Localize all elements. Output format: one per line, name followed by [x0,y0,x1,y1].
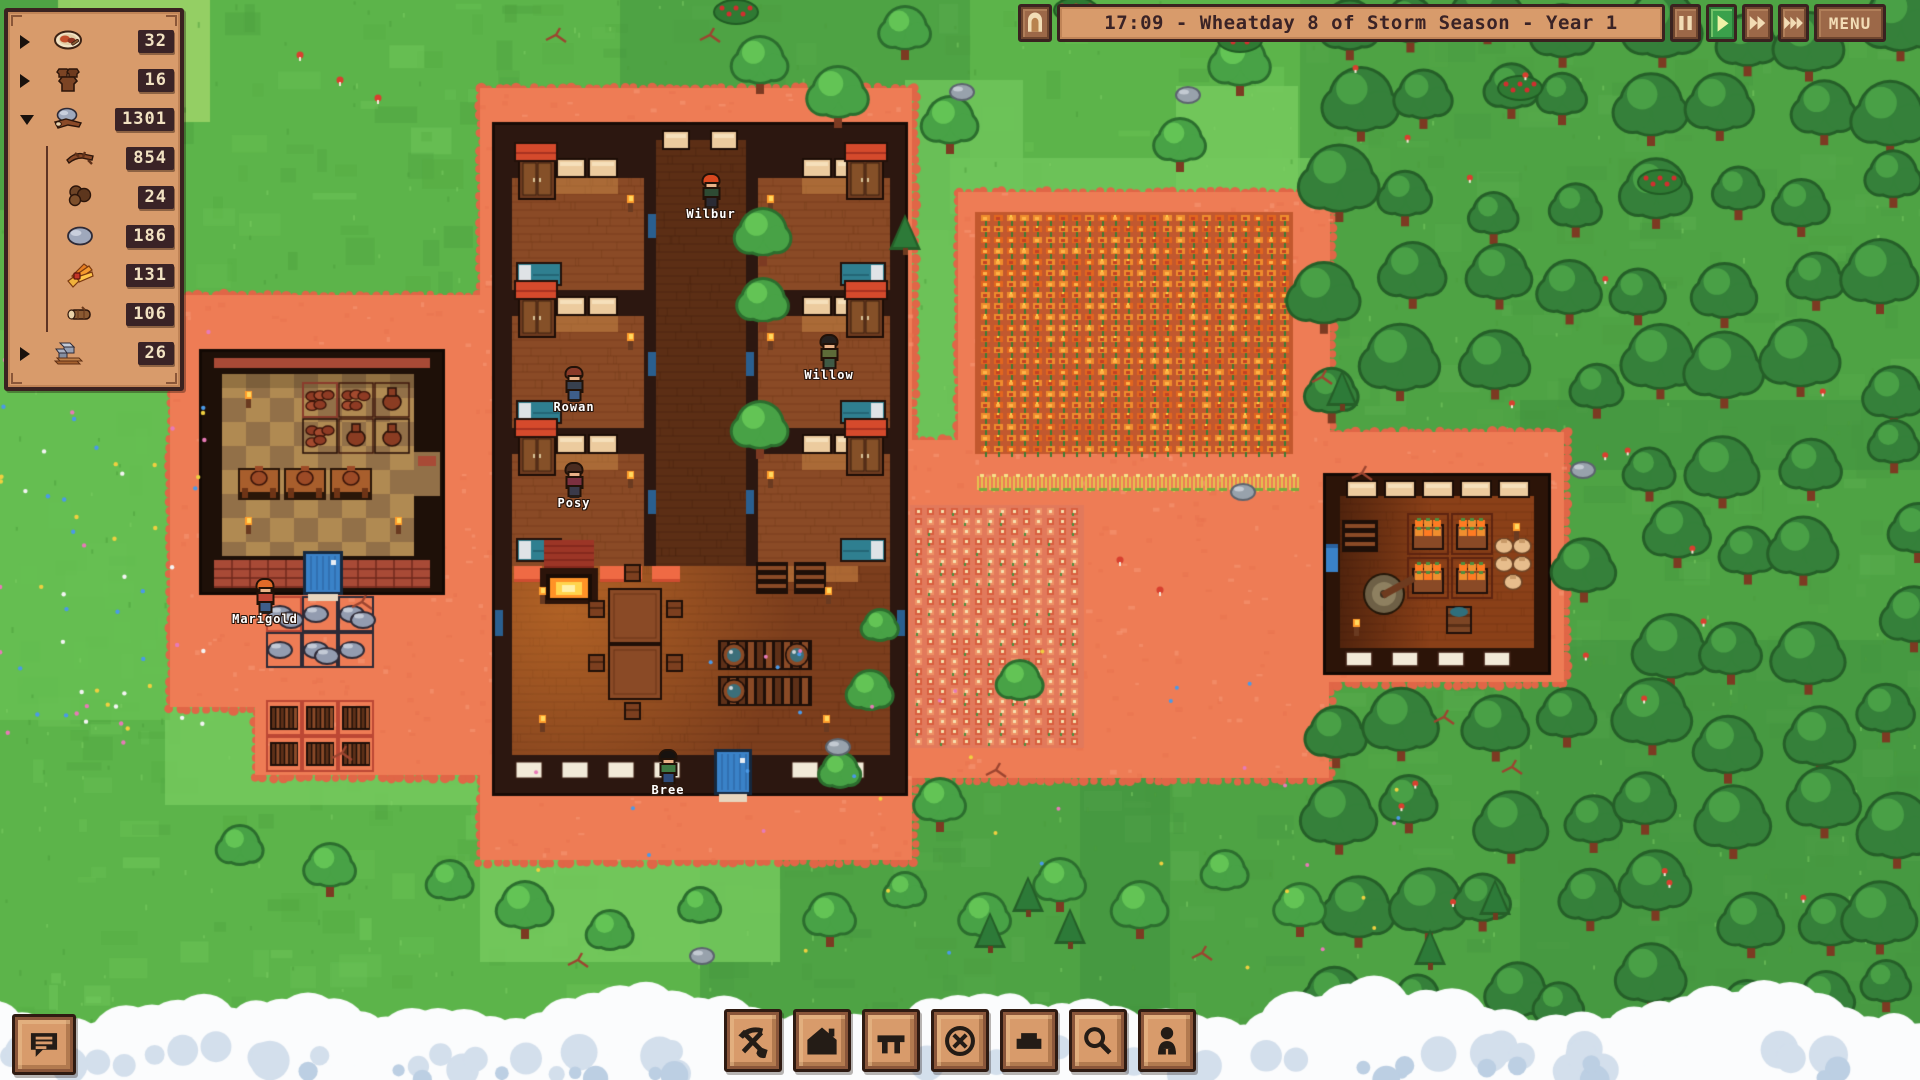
resource-row-logs[interactable]: 106 [8,295,180,334]
resource-row-materials[interactable]: 1301 [8,100,180,139]
resource-panel: 321613018542418613110626 [4,8,184,391]
peat-clumps-icon [64,182,96,214]
fastest-forward-icon [1781,10,1806,36]
count-badge: 1301 [115,108,174,131]
count-badge: 24 [138,186,174,209]
panel-corner-ornament [11,373,22,384]
pickaxe-shovel-icon [735,1023,771,1059]
character-sprite [258,580,273,614]
terrain-tool-button[interactable] [1000,1009,1058,1072]
caret-right-icon[interactable] [20,74,44,88]
play-icon [1709,10,1734,36]
game-viewport: Wilbur Willow Rowan Posy [0,0,1920,1080]
count-badge: 32 [138,30,174,53]
character-name-label: Posy [558,496,591,510]
sticks-icon [64,143,96,175]
villagers-tool-button[interactable] [1138,1009,1196,1072]
character-sprite [661,751,676,785]
message-log-icon [25,1026,63,1064]
arch-home-button[interactable] [1018,4,1052,42]
cancel-tool-button[interactable] [931,1009,989,1072]
pots-icon [52,65,84,97]
pink-crop-field[interactable] [910,505,1084,748]
menu-button[interactable]: MENU [1814,4,1886,42]
fast-forward-icon [1745,10,1770,36]
magnifier-icon [1080,1023,1116,1059]
speed-controls [1670,4,1809,42]
villager-icon [1149,1023,1185,1059]
build-tool-button[interactable] [793,1009,851,1072]
main-dormitory-building[interactable] [495,125,905,793]
time-bar: 17:09 - Wheatday 8 of Storm Season - Yea… [1018,4,1886,42]
kindling-bundle-icon [64,260,96,292]
count-badge: 26 [138,342,174,365]
arch-door-icon [1021,8,1049,38]
table-icon [873,1023,909,1059]
resource-row-kindling[interactable]: 131 [8,256,180,295]
caret-down-icon[interactable] [20,115,44,125]
granary-building[interactable] [1326,476,1548,672]
character-sprite [567,464,582,498]
cancel-circle-icon [942,1023,978,1059]
character-sprite [704,175,719,209]
inspect-tool-button[interactable] [1069,1009,1127,1072]
pause-button[interactable] [1670,4,1701,42]
meal-plate-icon [52,26,84,58]
character-name-label: Rowan [553,400,594,414]
time-display-text: 17:09 - Wheatday 8 of Storm Season - Yea… [1104,12,1617,34]
furniture-tool-button[interactable] [862,1009,920,1072]
resource-row-sticks[interactable]: 854 [8,139,180,178]
resource-row-meals[interactable]: 32 [8,22,180,61]
fast-forward-button[interactable] [1742,4,1773,42]
character-name-label: Bree [652,783,685,797]
materials-pile-icon [52,104,84,136]
pause-icon [1673,10,1698,36]
resource-row-peat[interactable]: 24 [8,178,180,217]
count-badge: 16 [138,69,174,92]
count-badge: 186 [126,225,174,248]
barrel-stockpile[interactable] [266,700,374,772]
workshop-building[interactable] [202,352,442,592]
panel-corner-ornament [166,373,177,384]
notifications-button[interactable] [12,1014,76,1075]
character-sprite [822,336,837,370]
fastest-forward-button[interactable] [1778,4,1809,42]
resource-rows: 321613018542418613110626 [8,22,180,373]
resource-row-blocks[interactable]: 26 [8,334,180,373]
character-name-label: Marigold [232,612,298,626]
character-name-label: Willow [804,368,853,382]
orange-crop-field[interactable] [975,212,1293,454]
stone-icon [64,221,96,253]
house-icon [804,1023,840,1059]
time-display: 17:09 - Wheatday 8 of Storm Season - Yea… [1057,4,1665,42]
resource-row-pots[interactable]: 16 [8,61,180,100]
blocks-planks-icon [52,338,84,370]
character-sprite [567,368,582,402]
resource-row-stone[interactable]: 186 [8,217,180,256]
count-badge: 131 [126,264,174,287]
bottom-toolbar [724,1009,1196,1072]
caret-right-icon[interactable] [20,347,44,361]
block-icon [1011,1023,1047,1059]
play-button[interactable] [1706,4,1737,42]
character-name-label: Wilbur [686,207,735,221]
stone-stockpile[interactable] [266,596,374,668]
count-badge: 106 [126,303,174,326]
mine-tool-button[interactable] [724,1009,782,1072]
log-icon [64,299,96,331]
count-badge: 854 [126,147,174,170]
caret-right-icon[interactable] [20,35,44,49]
